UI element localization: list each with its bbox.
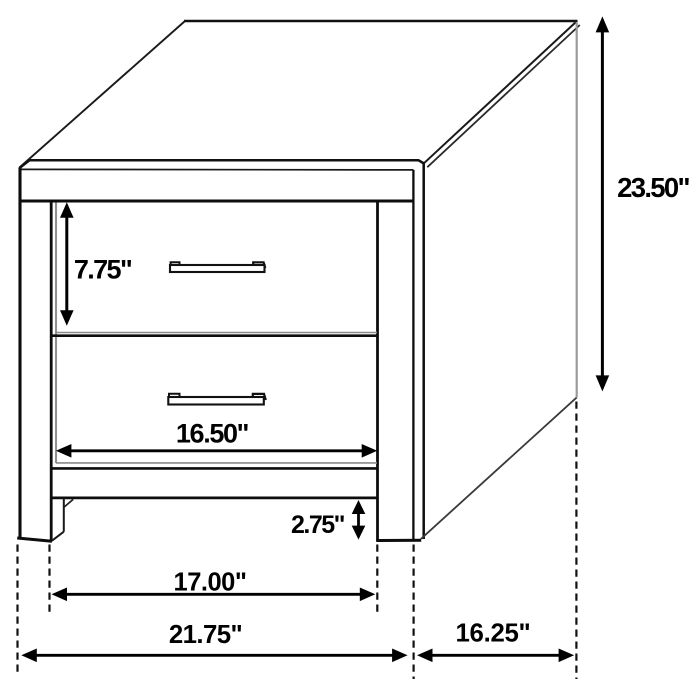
svg-text:16.25": 16.25" <box>456 619 531 647</box>
svg-text:23.50": 23.50" <box>617 172 689 203</box>
svg-text:21.75": 21.75" <box>169 621 242 649</box>
svg-text:7.75": 7.75" <box>74 255 132 285</box>
svg-text:17.00": 17.00" <box>174 569 247 597</box>
svg-text:16.50": 16.50" <box>176 419 249 449</box>
svg-text:2.75": 2.75" <box>291 511 345 539</box>
